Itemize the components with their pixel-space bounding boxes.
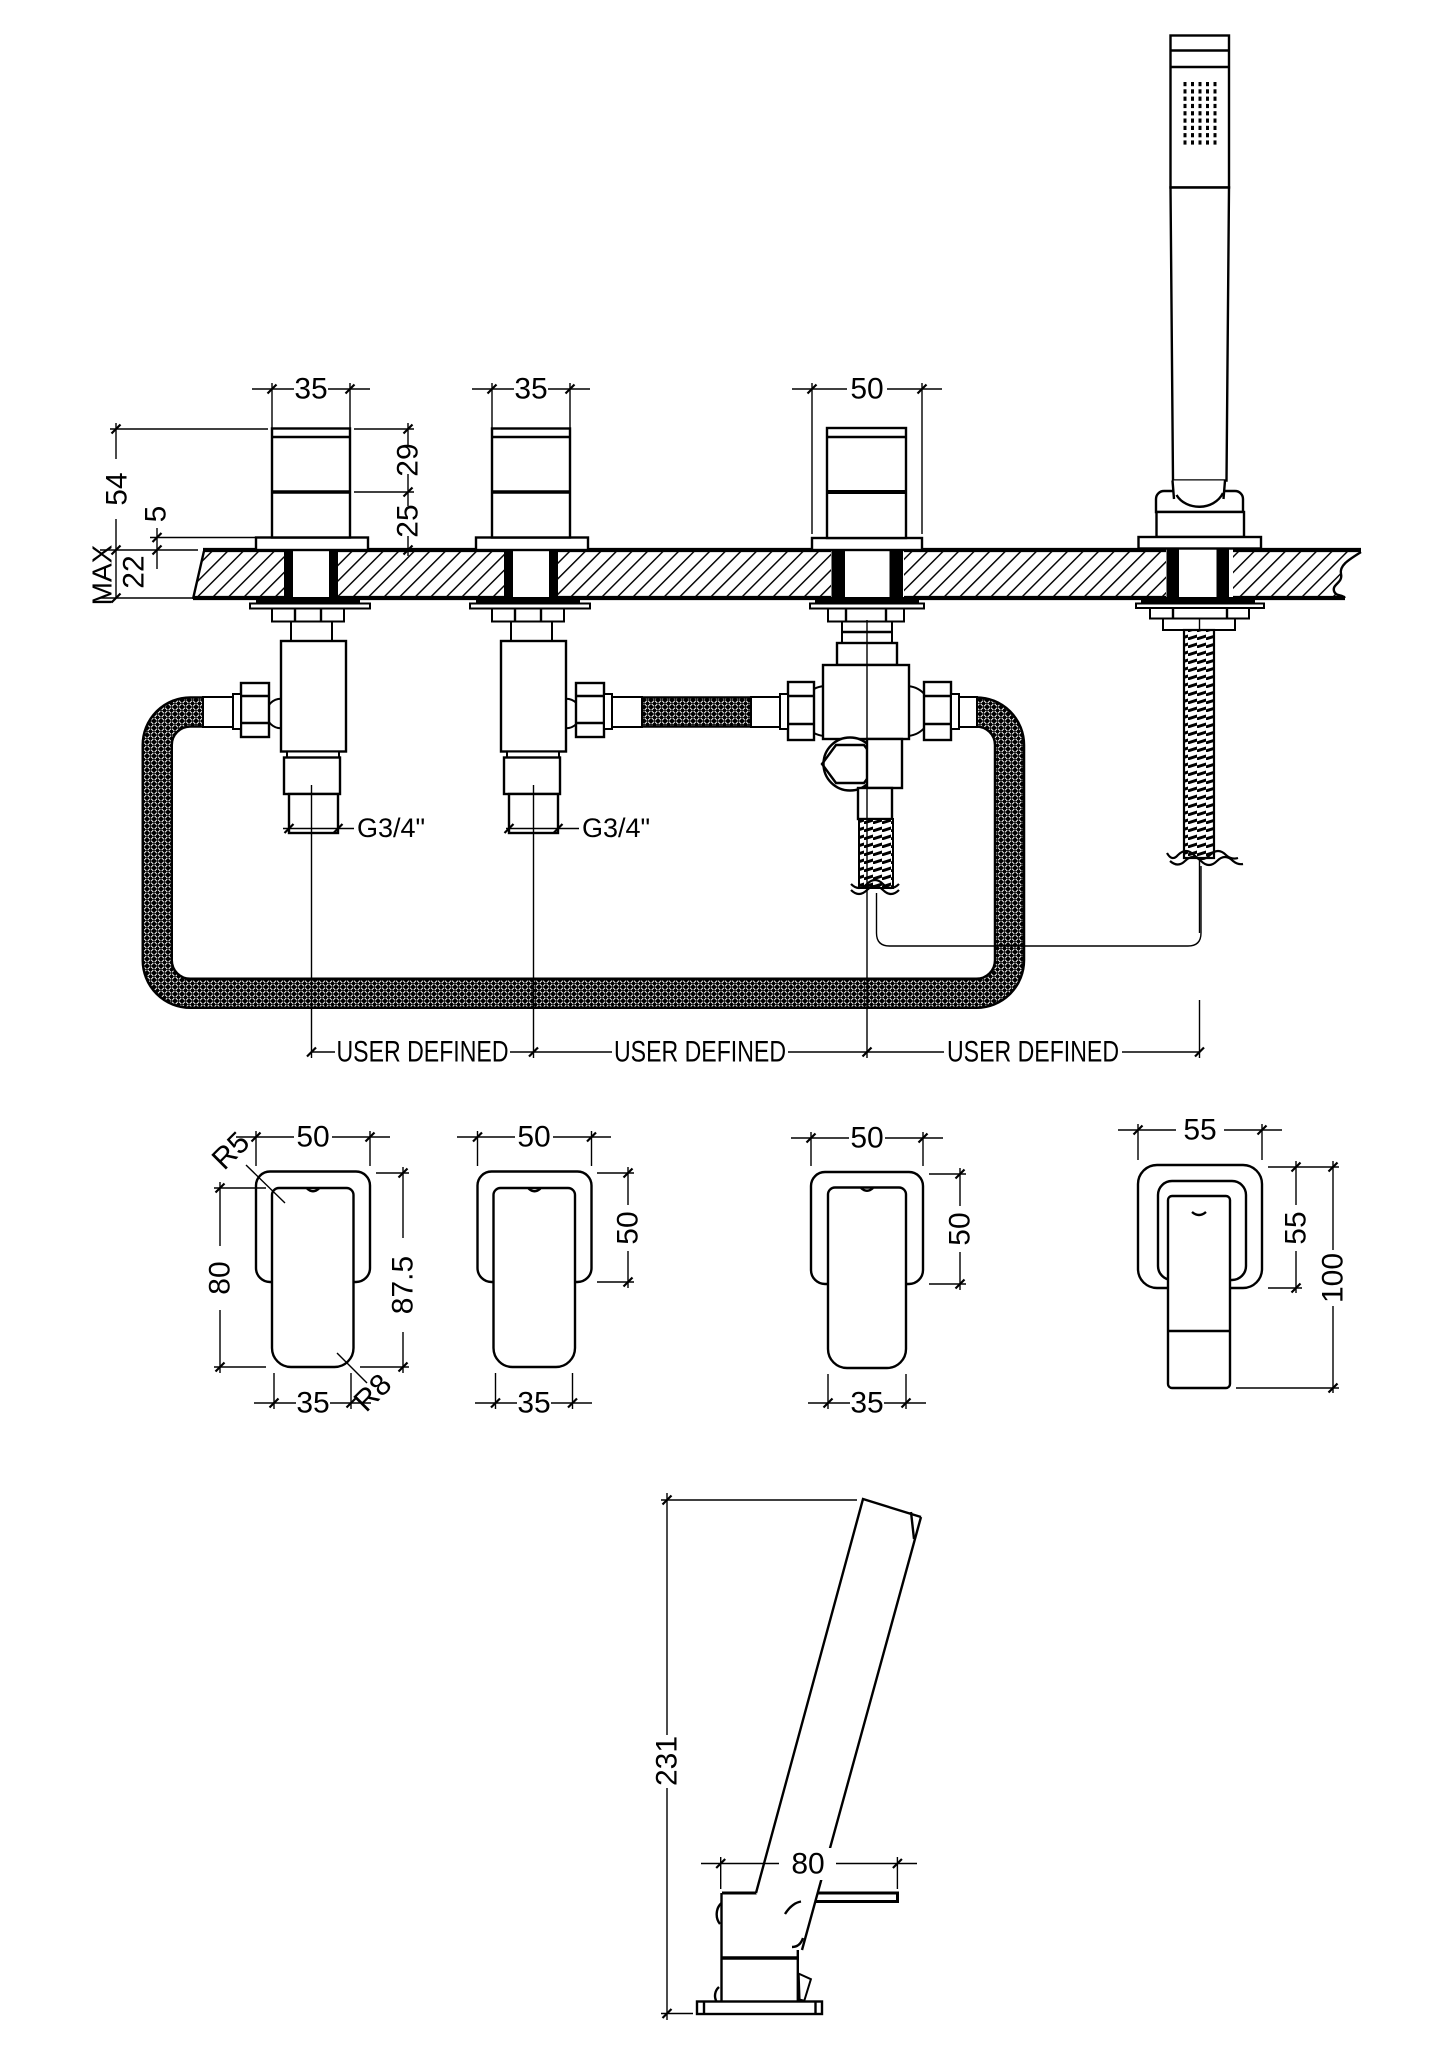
svg-text:35: 35 bbox=[296, 1387, 329, 1420]
svg-text:G3/4": G3/4" bbox=[357, 813, 425, 843]
svg-text:5: 5 bbox=[140, 506, 173, 523]
svg-text:54: 54 bbox=[101, 472, 134, 505]
svg-text:35: 35 bbox=[850, 1387, 883, 1420]
svg-text:100: 100 bbox=[1317, 1253, 1350, 1303]
svg-text:35: 35 bbox=[294, 373, 327, 406]
svg-text:29: 29 bbox=[392, 443, 425, 476]
svg-text:50: 50 bbox=[612, 1211, 645, 1244]
svg-text:USER DEFINED: USER DEFINED bbox=[614, 1036, 786, 1069]
svg-text:35: 35 bbox=[517, 1387, 550, 1420]
svg-text:MAX: MAX bbox=[87, 544, 118, 605]
svg-text:USER DEFINED: USER DEFINED bbox=[337, 1036, 509, 1069]
svg-text:50: 50 bbox=[850, 373, 883, 406]
svg-text:50: 50 bbox=[944, 1212, 977, 1245]
svg-text:80: 80 bbox=[791, 1848, 824, 1881]
svg-text:50: 50 bbox=[517, 1121, 550, 1154]
svg-text:231: 231 bbox=[651, 1736, 684, 1786]
svg-text:55: 55 bbox=[1280, 1211, 1313, 1244]
svg-text:USER DEFINED: USER DEFINED bbox=[947, 1036, 1119, 1069]
svg-text:80: 80 bbox=[204, 1261, 237, 1294]
svg-text:G3/4": G3/4" bbox=[582, 813, 650, 843]
svg-text:55: 55 bbox=[1183, 1114, 1216, 1147]
svg-text:25: 25 bbox=[392, 504, 425, 537]
svg-text:22: 22 bbox=[118, 555, 151, 588]
svg-text:87.5: 87.5 bbox=[387, 1256, 420, 1314]
svg-text:50: 50 bbox=[850, 1122, 883, 1155]
svg-text:35: 35 bbox=[514, 373, 547, 406]
svg-text:50: 50 bbox=[296, 1121, 329, 1154]
